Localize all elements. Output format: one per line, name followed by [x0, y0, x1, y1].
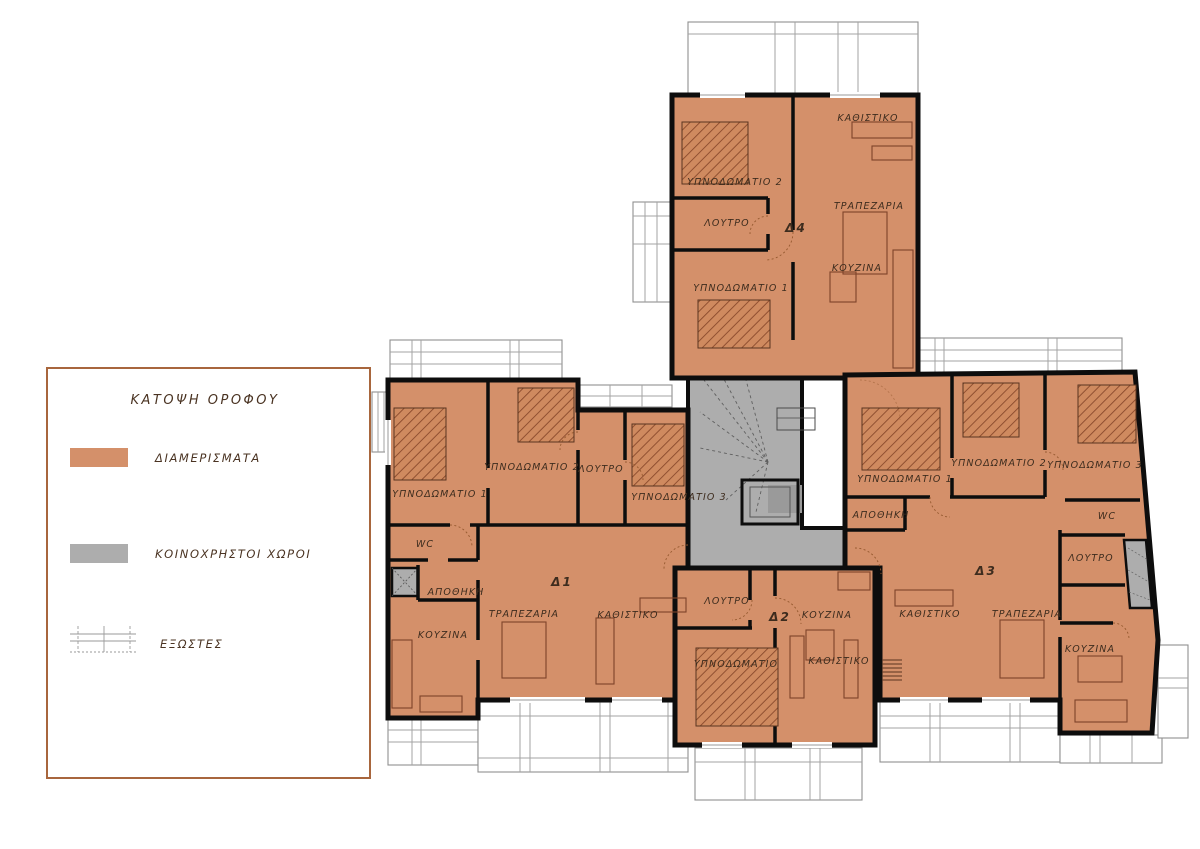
unit-label-d1: Δ1 [550, 575, 573, 589]
room-label-d3-dining: ΤΡΑΠΕΖΑΡΙΑ [992, 609, 1062, 620]
shaft-d3 [1124, 540, 1152, 608]
legend: ΚΑΤΟΨΗ ΟΡΟΦΟΥ ΔΙΑΜΕΡΙΣΜΑΤΑ ΚΟΙΝΟΧΡΗΣΤΟΙ … [47, 368, 370, 778]
room-label-d2-kitchen: ΚΟΥΖΙΝΑ [802, 610, 852, 621]
bed-d4-bedroom2 [682, 122, 748, 184]
room-label-d4-bedroom2: ΥΠΝΟΔΩΜΑΤΙΟ 2 [687, 177, 782, 188]
legend-swatch-apartments [70, 448, 128, 467]
room-label-d1-kitchen: ΚΟΥΖΙΝΑ [418, 630, 468, 641]
balcony-top-left [390, 340, 562, 380]
room-label-d1-bedroom1: ΥΠΝΟΔΩΜΑΤΙΟ 1 [392, 489, 487, 500]
bed-d3-bedroom1 [862, 408, 940, 470]
room-label-d2-bath: ΛΟΥΤΡΟ [703, 596, 749, 607]
room-label-d3-bedroom3: ΥΠΝΟΔΩΜΑΤΙΟ 3 [1047, 460, 1142, 471]
legend-swatch-common-areas [70, 544, 128, 563]
unit-label-d2: Δ2 [768, 610, 791, 624]
room-label-d1-dining: ΤΡΑΠΕΖΑΡΙΑ [489, 609, 559, 620]
unit-label-d4: Δ4 [784, 221, 807, 235]
room-label-d3-bath: ΛΟΥΤΡΟ [1067, 553, 1113, 564]
legend-label-apartments: ΔΙΑΜΕΡΙΣΜΑΤΑ [154, 451, 261, 465]
bed-d1-bedroom1 [394, 408, 446, 480]
unit-label-d3: Δ3 [974, 564, 997, 578]
balcony-right-strip [1158, 645, 1188, 738]
balcony-bottom-far-right [1060, 735, 1162, 763]
room-label-d2-bedroom: ΥΠΝΟΔΩΜΑΤΙΟ [694, 659, 778, 670]
bed-d3-bedroom2 [963, 383, 1019, 437]
room-label-d1-wc: WC [416, 539, 434, 550]
room-label-d3-living: ΚΑΘΙΣΤΙΚΟ [899, 609, 960, 620]
room-label-d3-kitchen: ΚΟΥΖΙΝΑ [1065, 644, 1115, 655]
room-label-d1-bedroom3: ΥΠΝΟΔΩΜΑΤΙΟ 3 [631, 492, 726, 503]
room-label-d1-living: ΚΑΘΙΣΤΙΚΟ [597, 610, 658, 621]
room-label-d3-storage: ΑΠΟΘΗΚΗ [852, 510, 910, 521]
legend-label-common-areas: ΚΟΙΝΟΧΡΗΣΤΟΙ ΧΩΡΟΙ [155, 547, 311, 561]
room-label-d3-bedroom2: ΥΠΝΟΔΩΜΑΤΙΟ 2 [951, 458, 1046, 469]
room-label-d4-bedroom1: ΥΠΝΟΔΩΜΑΤΙΟ 1 [693, 283, 788, 294]
bed-d4-bedroom1 [698, 300, 770, 348]
balcony-bottom-left [388, 718, 478, 765]
bed-d3-bedroom3 [1078, 385, 1136, 443]
balcony-mid-top [580, 385, 672, 407]
floor-plan: ΚΑΘΙΣΤΙΚΟ ΥΠΝΟΔΩΜΑΤΙΟ 2 ΛΟΥΤΡΟ Δ4 ΤΡΑΠΕΖ… [0, 0, 1200, 849]
floor-plan-canvas: ΚΑΘΙΣΤΙΚΟ ΥΠΝΟΔΩΜΑΤΙΟ 2 ΛΟΥΤΡΟ Δ4 ΤΡΑΠΕΖ… [0, 0, 1200, 849]
room-label-d4-dining: ΤΡΑΠΕΖΑΡΙΑ [834, 201, 904, 212]
balcony-bottom-center [478, 702, 688, 772]
balcony-bottom-d2 [695, 748, 862, 800]
legend-label-balconies: ΕΞΩΣΤΕΣ [160, 637, 223, 651]
balcony-top [688, 22, 918, 95]
bed-d1-bedroom3 [632, 424, 684, 486]
room-label-d1-storage: ΑΠΟΘΗΚΗ [427, 587, 485, 598]
legend-box [47, 368, 370, 778]
common-area-staircase [688, 362, 855, 570]
room-label-d4-bath: ΛΟΥΤΡΟ [703, 218, 749, 229]
legend-title: ΚΑΤΟΨΗ ΟΡΟΦΟΥ [131, 393, 280, 408]
bed-d1-bedroom2 [518, 388, 574, 442]
balcony-left-of-d4 [633, 202, 672, 302]
shaft-d1 [392, 568, 418, 596]
room-label-d3-wc: WC [1098, 511, 1116, 522]
room-label-d3-bedroom1: ΥΠΝΟΔΩΜΑΤΙΟ 1 [857, 474, 952, 485]
room-label-d1-bath: ΛΟΥΤΡΟ [577, 464, 623, 475]
balcony-top-right [910, 338, 1122, 373]
room-label-d1-bedroom2: ΥΠΝΟΔΩΜΑΤΙΟ 2 [484, 462, 579, 473]
room-label-d4-kitchen: ΚΟΥΖΙΝΑ [832, 263, 882, 274]
balcony-bottom-right [880, 702, 1060, 762]
room-label-d2-living: ΚΑΘΙΣΤΙΚΟ [808, 656, 869, 667]
room-label-d4-living: ΚΑΘΙΣΤΙΚΟ [837, 113, 898, 124]
